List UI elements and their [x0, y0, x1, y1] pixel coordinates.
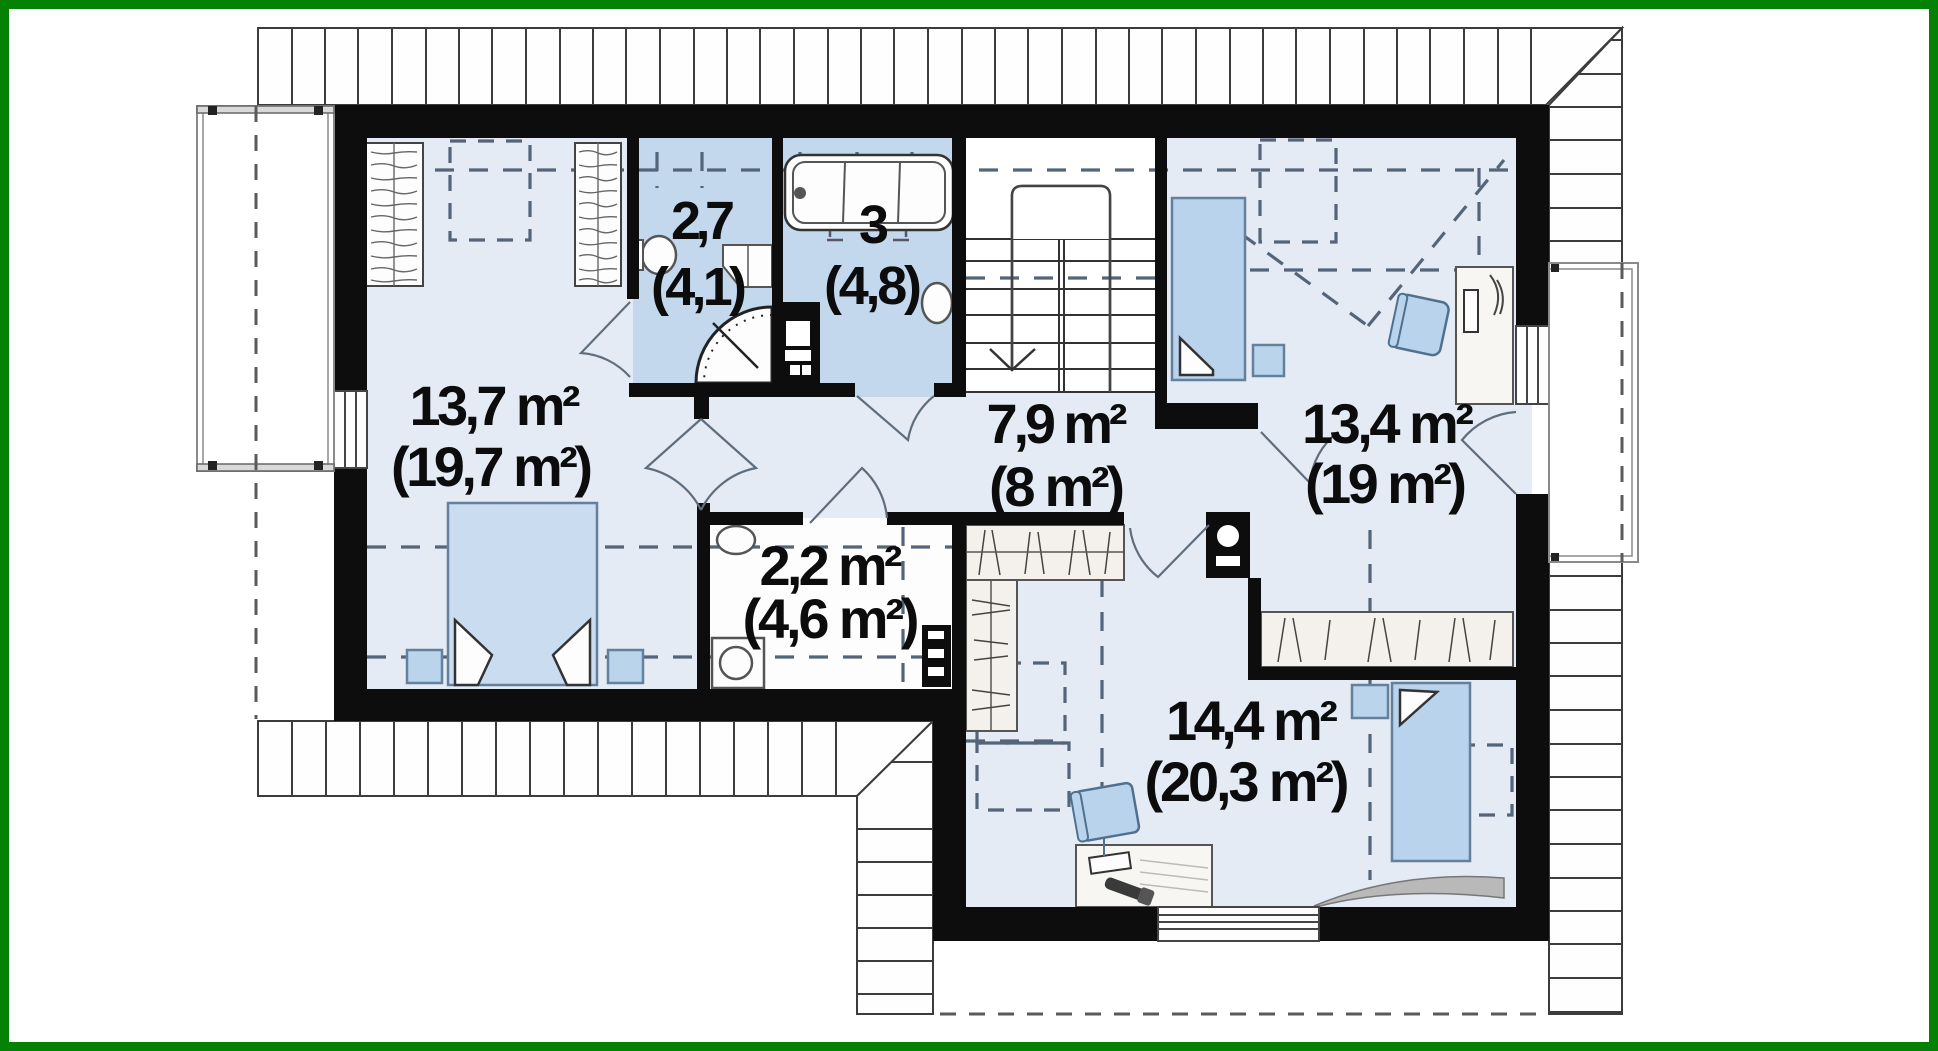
- svg-text:(19 m²): (19 m²): [1305, 452, 1467, 515]
- svg-text:(4,1): (4,1): [651, 257, 747, 317]
- svg-text:(19,7 m²): (19,7 m²): [391, 435, 593, 498]
- svg-text:7,9 m²: 7,9 m²: [987, 392, 1128, 455]
- svg-text:(20,3 m²): (20,3 m²): [1145, 750, 1350, 813]
- svg-text:2,7: 2,7: [671, 191, 735, 251]
- svg-text:(4,6 m²): (4,6 m²): [743, 587, 920, 650]
- svg-text:13,4 m²: 13,4 m²: [1302, 392, 1474, 455]
- svg-text:14,4 m²: 14,4 m²: [1166, 689, 1338, 752]
- svg-text:13,7 m²: 13,7 m²: [410, 374, 581, 437]
- svg-text:(4,8): (4,8): [824, 256, 922, 316]
- svg-text:3: 3: [859, 195, 889, 255]
- svg-text:(8 m²): (8 m²): [989, 455, 1125, 518]
